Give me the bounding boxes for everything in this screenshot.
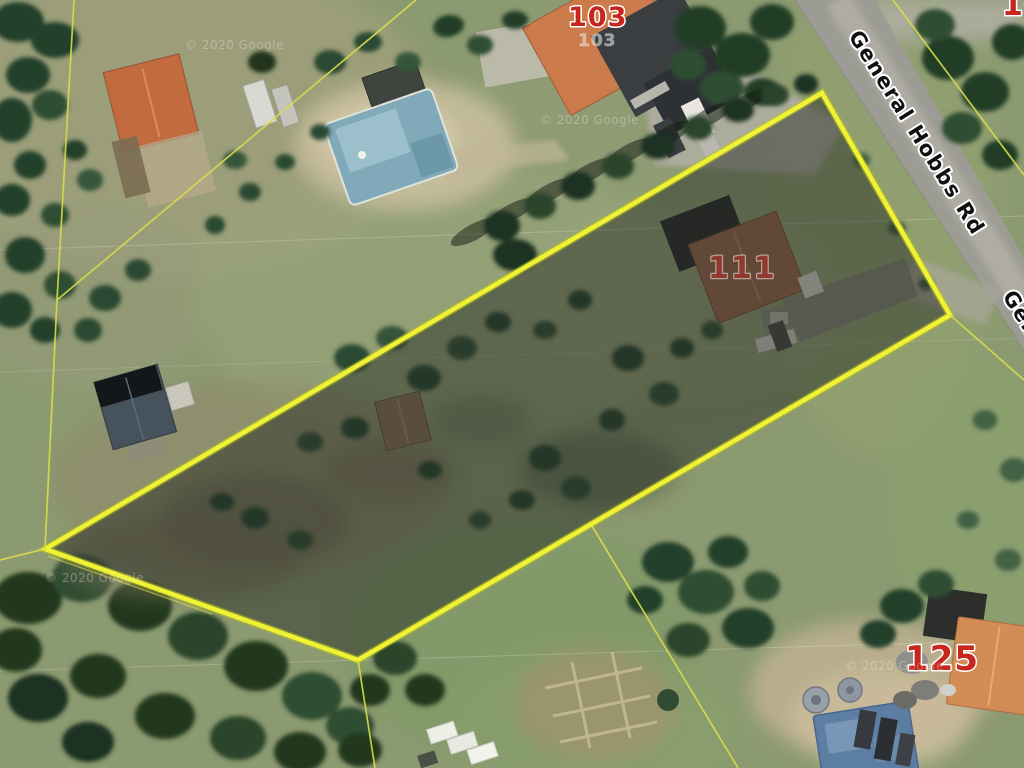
aerial-map-canvas[interactable]: 103 103 111 125 10 General Hobbs Rd Gene… (0, 0, 1024, 768)
bush (657, 689, 679, 711)
parcel-label-103-ghost: 103 (578, 31, 617, 51)
parcel-label-103: 103 (568, 2, 627, 33)
parcel-label-111: 111 (708, 251, 777, 286)
watermark: © 2020 Google (845, 659, 944, 673)
watermark: © 2020 Google (540, 113, 639, 127)
watermark: © 2020 Google (185, 38, 284, 52)
parcel-label-corner-partial: 10 (1002, 0, 1024, 23)
aerial-map-view[interactable]: 103 103 111 125 10 General Hobbs Rd Gene… (0, 0, 1024, 768)
watermark: © 2020 Google (45, 571, 144, 585)
